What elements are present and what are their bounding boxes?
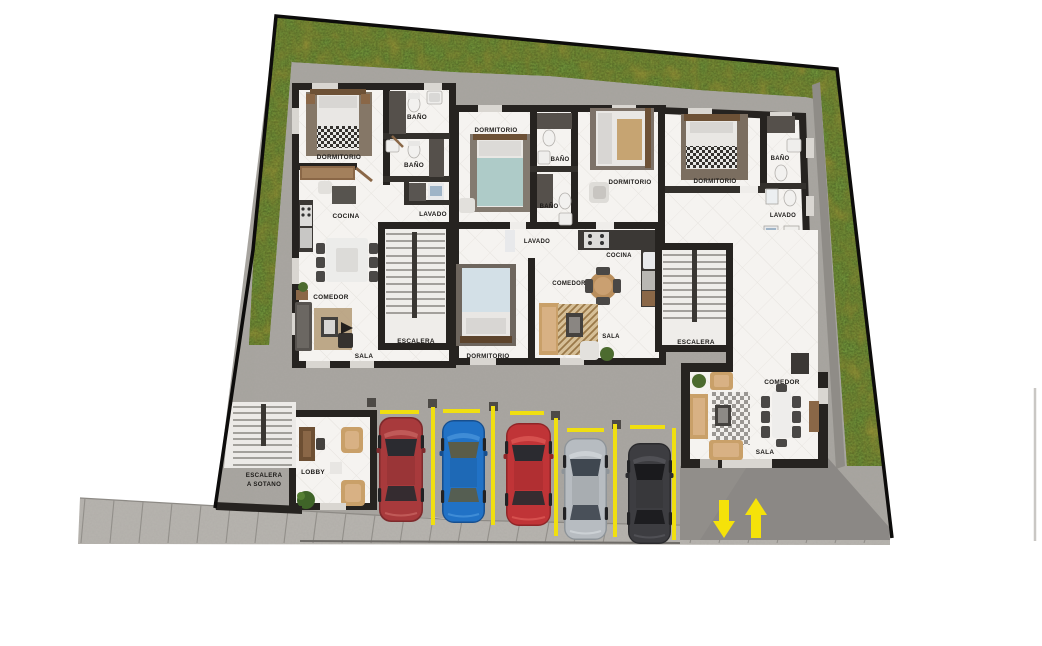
svg-text:COMEDOR: COMEDOR <box>764 379 800 386</box>
svg-text:ESCALERA: ESCALERA <box>246 472 283 479</box>
svg-text:BAÑO: BAÑO <box>407 112 427 121</box>
svg-text:COMEDOR: COMEDOR <box>313 294 349 301</box>
svg-text:ESCALERA: ESCALERA <box>677 339 715 346</box>
svg-text:DORMITORIO: DORMITORIO <box>474 127 517 134</box>
svg-text:BAÑO: BAÑO <box>404 160 424 169</box>
svg-text:LOBBY: LOBBY <box>301 469 325 476</box>
svg-text:DORMITORIO: DORMITORIO <box>693 178 736 185</box>
svg-text:BAÑO: BAÑO <box>771 155 790 162</box>
svg-text:DORMITORIO: DORMITORIO <box>608 179 651 186</box>
svg-text:BAÑO: BAÑO <box>551 156 570 163</box>
svg-text:COCINA: COCINA <box>332 213 359 220</box>
svg-text:BAÑO: BAÑO <box>540 203 559 210</box>
svg-text:SALA: SALA <box>355 353 374 360</box>
svg-text:LAVADO: LAVADO <box>524 239 550 245</box>
svg-text:LAVADO: LAVADO <box>770 213 796 219</box>
svg-text:LAVADO: LAVADO <box>419 211 447 218</box>
svg-text:COCINA: COCINA <box>606 253 632 259</box>
svg-text:SALA: SALA <box>756 449 775 456</box>
svg-text:COMEDOR: COMEDOR <box>552 281 586 287</box>
svg-text:ESCALERA: ESCALERA <box>397 338 435 345</box>
svg-text:A SOTANO: A SOTANO <box>247 481 281 488</box>
svg-text:DORMITORIO: DORMITORIO <box>466 353 509 360</box>
svg-text:DORMITORIO: DORMITORIO <box>317 154 361 161</box>
svg-text:SALA: SALA <box>602 334 620 340</box>
